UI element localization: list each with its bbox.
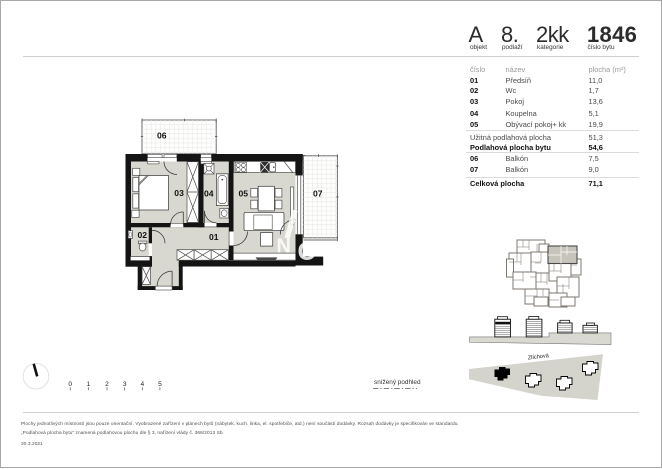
svg-text:2: 2 [105,381,109,388]
svg-text:02: 02 [138,230,148,240]
svg-text:1: 1 [87,381,91,388]
svg-text:4: 4 [140,381,144,388]
svg-text:5: 5 [158,381,162,388]
svg-text:04: 04 [204,189,214,199]
svg-text:N: N [277,236,291,258]
svg-text:05: 05 [239,189,249,199]
svg-text:06: 06 [157,131,167,141]
svg-text:0: 0 [68,381,72,388]
svg-text:01: 01 [209,232,219,242]
svg-text:07: 07 [313,189,323,199]
svg-text:3: 3 [123,381,127,388]
svg-text:Zlíchová: Zlíchová [528,353,551,361]
svg-text:03: 03 [174,188,184,198]
svg-text:C: C [298,238,316,266]
